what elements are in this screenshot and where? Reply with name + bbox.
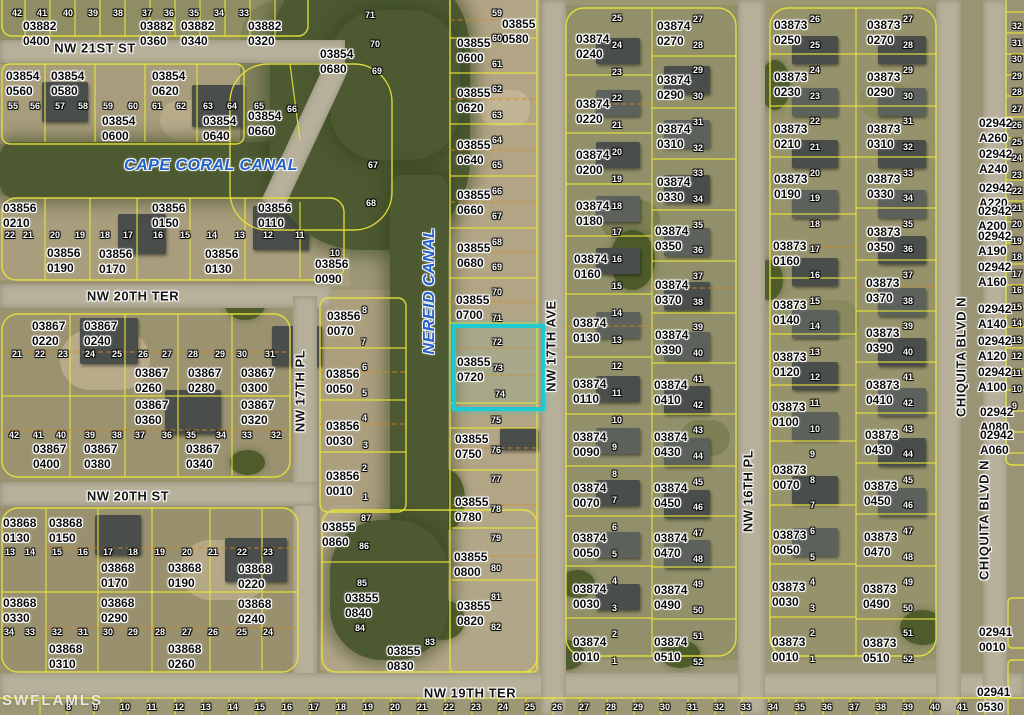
lot-number: 15 bbox=[180, 230, 190, 240]
lot-number: 68 bbox=[492, 237, 502, 247]
lot-number: 32 bbox=[1012, 21, 1022, 31]
lot-number: 60 bbox=[128, 101, 138, 111]
lot-number: 27 bbox=[903, 14, 913, 24]
lot-number: 30 bbox=[693, 91, 703, 101]
lot-number: 11 bbox=[147, 702, 157, 712]
parcel-strap-label: 03854 0580 bbox=[51, 69, 84, 98]
lot-number: 24 bbox=[612, 40, 622, 50]
parcel-strap-label: 03873 0050 bbox=[773, 528, 806, 557]
lot-number: 37 bbox=[903, 270, 913, 280]
lot-number: 10 bbox=[612, 415, 622, 425]
lot-number: 33 bbox=[242, 430, 252, 440]
lot-number: 37 bbox=[135, 430, 145, 440]
lot-number: 40 bbox=[63, 8, 73, 18]
lot-number: 19 bbox=[155, 547, 165, 557]
lot-number: 58 bbox=[78, 101, 88, 111]
lot-number: 31 bbox=[687, 702, 697, 712]
lot-number: 23 bbox=[58, 349, 68, 359]
lot-number: 10 bbox=[120, 702, 130, 712]
parcel-strap-label: 03874 0310 bbox=[657, 122, 690, 151]
parcel-strap-label: 03874 0270 bbox=[657, 19, 690, 48]
lot-number: 37 bbox=[849, 702, 859, 712]
parcel-strap-label: 03874 0180 bbox=[576, 199, 609, 228]
lot-number: 21 bbox=[208, 547, 218, 557]
lot-number: 20 bbox=[810, 168, 820, 178]
parcel-strap-label: 03873 0470 bbox=[864, 530, 897, 559]
lot-number: 20 bbox=[1012, 219, 1022, 229]
lot-number: 64 bbox=[227, 101, 237, 111]
lot-number: 40 bbox=[903, 347, 913, 357]
mls-watermark: SWFLAMLS bbox=[2, 692, 103, 709]
lot-number: 11 bbox=[612, 388, 622, 398]
lot-number: 15 bbox=[1012, 302, 1022, 312]
lot-number: 52 bbox=[903, 654, 913, 664]
lot-number: 31 bbox=[903, 116, 913, 126]
parcel-strap-label: 03874 0410 bbox=[654, 378, 687, 407]
lot-number: 48 bbox=[903, 552, 913, 562]
lot-number: 78 bbox=[491, 504, 501, 514]
lot-number: 34 bbox=[693, 194, 703, 204]
lot-number: 27 bbox=[579, 702, 589, 712]
parcel-strap-label: 03856 0190 bbox=[47, 246, 80, 275]
lot-number: 38 bbox=[112, 430, 122, 440]
lot-number: 85 bbox=[357, 578, 367, 588]
lot-number: 41 bbox=[903, 372, 913, 382]
lot-number: 12 bbox=[174, 702, 184, 712]
parcel-strap-label: 03867 0340 bbox=[186, 442, 219, 471]
lot-number: 35 bbox=[189, 8, 199, 18]
lot-number: 59 bbox=[103, 101, 113, 111]
lot-number: 32 bbox=[693, 143, 703, 153]
lot-number: 84 bbox=[355, 623, 365, 633]
parcel-strap-label: 03867 0320 bbox=[241, 398, 274, 427]
parcel-strap-label: 03873 0030 bbox=[772, 580, 805, 609]
lot-number: 44 bbox=[903, 449, 913, 459]
lot-number: 50 bbox=[903, 603, 913, 613]
lot-number: 51 bbox=[903, 628, 913, 638]
lot-number: 45 bbox=[903, 475, 913, 485]
lot-number: 25 bbox=[237, 627, 247, 637]
lot-number: 38 bbox=[876, 702, 886, 712]
parcel-strap-label: 03855 0660 bbox=[457, 188, 490, 217]
parcel-strap-label: 02942 A140 bbox=[978, 302, 1011, 331]
lot-number: 7 bbox=[810, 500, 815, 510]
lot-number: 16 bbox=[78, 547, 88, 557]
lot-number: 22 bbox=[612, 93, 622, 103]
lot-number: 10 bbox=[330, 248, 340, 258]
lot-number: 30 bbox=[237, 349, 247, 359]
parcel-strap-label: 03882 0340 bbox=[181, 19, 214, 48]
lot-number: 17 bbox=[1012, 269, 1022, 279]
lot-number: 21 bbox=[23, 230, 33, 240]
lot-number: 30 bbox=[903, 91, 913, 101]
lot-number: 20 bbox=[390, 702, 400, 712]
lot-number: 64 bbox=[492, 135, 502, 145]
lot-number: 41 bbox=[693, 374, 703, 384]
canal-name-label: NEREID CANAL bbox=[421, 228, 439, 355]
parcel-strap-label: 03868 0150 bbox=[49, 516, 82, 545]
lot-number: 33 bbox=[741, 702, 751, 712]
lot-number: 23 bbox=[1012, 170, 1022, 180]
lot-number: 22 bbox=[1012, 186, 1022, 196]
parcel-map-canvas[interactable]: 03882 040003882 036003882 034003882 0320… bbox=[0, 0, 1024, 715]
parcel-strap-label: 03854 0600 bbox=[102, 114, 135, 143]
lot-number: 39 bbox=[903, 702, 913, 712]
lot-number: 24 bbox=[1012, 153, 1022, 163]
lot-number: 62 bbox=[492, 84, 502, 94]
lot-number: 26 bbox=[208, 627, 218, 637]
street-name-label: CHIQUITA BLVD N bbox=[954, 297, 969, 417]
lot-number: 19 bbox=[612, 174, 622, 184]
lot-number: 12 bbox=[1012, 351, 1022, 361]
lot-number: 22 bbox=[810, 116, 820, 126]
lot-number: 21 bbox=[12, 349, 22, 359]
lot-number: 26 bbox=[810, 14, 820, 24]
lot-line bbox=[290, 64, 300, 140]
lot-number: 46 bbox=[903, 500, 913, 510]
parcel-strap-label: 03856 0110 bbox=[258, 201, 291, 230]
lot-number: 87 bbox=[361, 513, 371, 523]
lot-number: 24 bbox=[498, 702, 508, 712]
lot-number: 29 bbox=[215, 349, 225, 359]
parcel-strap-label: 03873 0070 bbox=[773, 463, 806, 492]
lot-number: 5 bbox=[810, 552, 815, 562]
parcel-strap-label: 03854 0620 bbox=[152, 69, 185, 98]
parcel-strap-label: 03868 0190 bbox=[168, 561, 201, 590]
lot-number: 36 bbox=[903, 244, 913, 254]
parcel-strap-label: 03874 0510 bbox=[654, 635, 687, 664]
parcel-strap-label: 03868 0260 bbox=[168, 642, 201, 671]
parcel-strap-label: 03856 0130 bbox=[205, 247, 238, 276]
lot-number: 25 bbox=[612, 13, 622, 23]
lot-number: 36 bbox=[162, 430, 172, 440]
parcel-strap-label: 03873 0370 bbox=[866, 276, 899, 305]
lot-number: 12 bbox=[612, 361, 622, 371]
lot-number: 70 bbox=[492, 287, 502, 297]
lot-number: 13 bbox=[235, 230, 245, 240]
lot-number: 7 bbox=[612, 495, 617, 505]
lot-number: 70 bbox=[370, 39, 380, 49]
lot-number: 63 bbox=[203, 101, 213, 111]
lot-number: 40 bbox=[693, 348, 703, 358]
parcel-strap-label: 03854 0680 bbox=[320, 47, 353, 76]
parcel-strap-label: 03856 0070 bbox=[327, 309, 360, 338]
parcel-strap-label: 03873 0230 bbox=[774, 70, 807, 99]
parcel-strap-label: 03874 0370 bbox=[655, 278, 688, 307]
lot-number: 56 bbox=[30, 101, 40, 111]
lot-number: 11 bbox=[295, 230, 305, 240]
lot-number: 48 bbox=[693, 554, 703, 564]
lot-number: 22 bbox=[35, 349, 45, 359]
parcel-strap-label: 03873 0450 bbox=[864, 479, 897, 508]
parcel-strap-label: 03855 0580 bbox=[502, 17, 535, 46]
lot-number: 16 bbox=[612, 254, 622, 264]
parcel-strap-label: 03873 0270 bbox=[867, 18, 900, 47]
lot-number: 31 bbox=[693, 117, 703, 127]
lot-number: 60 bbox=[492, 33, 502, 43]
lot-number: 19 bbox=[1012, 236, 1022, 246]
parcel-strap-label: 03855 0620 bbox=[457, 86, 490, 115]
lot-number: 29 bbox=[128, 627, 138, 637]
street-name-label: NW 20TH TER bbox=[87, 289, 179, 304]
parcel-strap-label: 02942 A160 bbox=[978, 260, 1011, 289]
lot-number: 30 bbox=[103, 627, 113, 637]
lot-number: 18 bbox=[810, 219, 820, 229]
lot-number: 68 bbox=[366, 198, 376, 208]
lot-number: 1 bbox=[810, 654, 815, 664]
lot-number: 12 bbox=[263, 230, 273, 240]
lot-number: 23 bbox=[612, 67, 622, 77]
lot-number: 21 bbox=[1012, 203, 1022, 213]
parcel-strap-label: 03856 0150 bbox=[152, 201, 185, 230]
lot-number: 26 bbox=[552, 702, 562, 712]
lot-number: 39 bbox=[85, 430, 95, 440]
parcel-strap-label: 03868 0170 bbox=[101, 561, 134, 590]
lot-number: 39 bbox=[88, 8, 98, 18]
lot-number: 15 bbox=[52, 547, 62, 557]
lot-number: 18 bbox=[336, 702, 346, 712]
lot-number: 24 bbox=[263, 627, 273, 637]
lot-number: 14 bbox=[228, 702, 238, 712]
lot-number: 29 bbox=[633, 702, 643, 712]
parcel-strap-label: 03855 0840 bbox=[345, 591, 378, 620]
parcel-strap-label: 03873 0430 bbox=[865, 428, 898, 457]
lot-number: 2 bbox=[810, 628, 815, 638]
lot-number: 13 bbox=[1012, 335, 1022, 345]
lot-number: 39 bbox=[903, 321, 913, 331]
lot-number: 20 bbox=[612, 147, 622, 157]
lot-number: 40 bbox=[56, 430, 66, 440]
lot-number: 42 bbox=[693, 400, 703, 410]
parcel-strap-label: 03874 0110 bbox=[573, 377, 606, 406]
lot-number: 8 bbox=[612, 469, 617, 479]
lot-number: 20 bbox=[182, 547, 192, 557]
lot-number: 62 bbox=[176, 101, 186, 111]
lot-number: 5 bbox=[362, 388, 367, 398]
lot-number: 17 bbox=[309, 702, 319, 712]
parcel-strap-label: 03882 0360 bbox=[140, 19, 173, 48]
lot-number: 32 bbox=[714, 702, 724, 712]
parcel-strap-label: 03873 0290 bbox=[867, 70, 900, 99]
parcel-strap-label: 03873 0310 bbox=[867, 122, 900, 151]
parcel-strap-label: 03855 0820 bbox=[457, 599, 490, 628]
lot-number: 13 bbox=[612, 335, 622, 345]
parcel-strap-label: 03855 0680 bbox=[457, 241, 490, 270]
lot-number: 43 bbox=[903, 424, 913, 434]
lot-number: 28 bbox=[606, 702, 616, 712]
lot-number: 28 bbox=[693, 40, 703, 50]
lot-number: 41 bbox=[37, 8, 47, 18]
lot-number: 41 bbox=[33, 430, 43, 440]
lot-number: 27 bbox=[182, 627, 192, 637]
parcel-strap-label: 03873 0330 bbox=[867, 172, 900, 201]
lot-number: 2 bbox=[362, 463, 367, 473]
parcel-strap-label: 03874 0030 bbox=[573, 582, 606, 611]
lot-number: 33 bbox=[25, 627, 35, 637]
lot-number: 47 bbox=[693, 528, 703, 538]
lot-number: 31 bbox=[1012, 38, 1022, 48]
lot-number: 32 bbox=[271, 430, 281, 440]
lot-number: 27 bbox=[1012, 104, 1022, 114]
lot-number: 41 bbox=[957, 702, 967, 712]
lot-number: 83 bbox=[425, 637, 435, 647]
lot-number: 17 bbox=[810, 244, 820, 254]
lot-number: 34 bbox=[216, 430, 226, 440]
lot-number: 33 bbox=[693, 168, 703, 178]
lot-number: 34 bbox=[4, 627, 14, 637]
lot-number: 49 bbox=[693, 579, 703, 589]
parcel-strap-label: 02941 0530 bbox=[977, 685, 1010, 714]
parcel-strap-label: 03855 0750 bbox=[455, 432, 488, 461]
lot-number: 50 bbox=[693, 605, 703, 615]
lot-number: 21 bbox=[612, 120, 622, 130]
lot-number: 27 bbox=[162, 349, 172, 359]
parcel-strap-label: 02942 A060 bbox=[980, 428, 1013, 457]
lot-number: 18 bbox=[612, 201, 622, 211]
lot-number: 16 bbox=[810, 270, 820, 280]
parcel-strap-label: 03856 0010 bbox=[326, 469, 359, 498]
lot-number: 14 bbox=[612, 308, 622, 318]
lot-number: 15 bbox=[255, 702, 265, 712]
lot-number: 10 bbox=[1012, 384, 1022, 394]
lot-number: 4 bbox=[362, 413, 367, 423]
parcel-strap-label: 03855 0830 bbox=[387, 644, 420, 673]
parcel-strap-label: 03867 0260 bbox=[135, 366, 168, 395]
lot-number: 36 bbox=[164, 8, 174, 18]
lot-number: 2 bbox=[612, 629, 617, 639]
parcel-strap-label: 03868 0290 bbox=[101, 596, 134, 625]
lot-number: 16 bbox=[282, 702, 292, 712]
lot-number: 15 bbox=[810, 296, 820, 306]
lot-number: 49 bbox=[903, 577, 913, 587]
parcel-strap-label: 03873 0190 bbox=[774, 172, 807, 201]
lot-number: 8 bbox=[362, 305, 367, 315]
lot-number: 9 bbox=[612, 442, 617, 452]
parcel-strap-label: 03868 0310 bbox=[49, 642, 82, 671]
lot-number: 28 bbox=[1012, 87, 1022, 97]
lot-number: 24 bbox=[810, 65, 820, 75]
lot-number: 45 bbox=[693, 477, 703, 487]
parcel-strap-label: 03874 0090 bbox=[573, 430, 606, 459]
lot-number: 28 bbox=[903, 40, 913, 50]
lot-number: 3 bbox=[810, 603, 815, 613]
parcel-strap-label: 03867 0360 bbox=[135, 398, 168, 427]
lot-number: 40 bbox=[930, 702, 940, 712]
lot-number: 39 bbox=[693, 322, 703, 332]
lot-number: 43 bbox=[693, 425, 703, 435]
lot-number: 13 bbox=[201, 702, 211, 712]
lot-number: 23 bbox=[810, 91, 820, 101]
lot-number: 21 bbox=[417, 702, 427, 712]
parcel-strap-label: 03874 0490 bbox=[654, 583, 687, 612]
lot-number: 38 bbox=[113, 8, 123, 18]
lot-number: 11 bbox=[810, 398, 820, 408]
lot-number: 86 bbox=[359, 541, 369, 551]
lot-number: 61 bbox=[492, 59, 502, 69]
lot-number: 73 bbox=[493, 363, 503, 373]
parcel-strap-label: 03882 0320 bbox=[248, 19, 281, 48]
parcel-strap-label: 03874 0350 bbox=[655, 224, 688, 253]
lot-number: 71 bbox=[492, 313, 502, 323]
lot-number: 9 bbox=[1012, 401, 1017, 411]
lot-number: 65 bbox=[492, 160, 502, 170]
lot-number: 19 bbox=[75, 230, 85, 240]
parcel-strap-label: 03873 0120 bbox=[773, 350, 806, 379]
lot-number: 66 bbox=[492, 186, 502, 196]
lot-number: 26 bbox=[138, 349, 148, 359]
lot-number: 35 bbox=[693, 220, 703, 230]
lot-number: 82 bbox=[491, 622, 501, 632]
parcel-strap-label: 03856 0170 bbox=[99, 247, 132, 276]
lot-number: 66 bbox=[287, 104, 297, 114]
lot-number: 14 bbox=[207, 230, 217, 240]
lot-number: 42 bbox=[9, 430, 19, 440]
lot-number: 6 bbox=[362, 362, 367, 372]
lot-number: 57 bbox=[55, 101, 65, 111]
lot-number: 32 bbox=[52, 627, 62, 637]
parcel-strap-label: 03854 0560 bbox=[6, 69, 39, 98]
lot-number: 18 bbox=[100, 230, 110, 240]
lot-number: 42 bbox=[12, 8, 22, 18]
lot-number: 16 bbox=[153, 230, 163, 240]
lot-number: 7 bbox=[361, 337, 366, 347]
parcel-strap-label: 03873 0510 bbox=[863, 636, 896, 665]
lot-number: 36 bbox=[822, 702, 832, 712]
lot-number: 69 bbox=[372, 66, 382, 76]
lot-number: 28 bbox=[188, 349, 198, 359]
street-name-label: NW 19TH TER bbox=[424, 686, 516, 701]
parcel-strap-label: 03855 0700 bbox=[456, 293, 489, 322]
lot-number: 29 bbox=[693, 65, 703, 75]
lot-number: 67 bbox=[368, 160, 378, 170]
parcel-strap-label: 03867 0280 bbox=[188, 366, 221, 395]
lot-number: 35 bbox=[186, 430, 196, 440]
parcel-strap-label: 03855 0640 bbox=[457, 138, 490, 167]
parcel-strap-label: 03873 0390 bbox=[866, 326, 899, 355]
lot-number: 13 bbox=[810, 347, 820, 357]
lot-number: 34 bbox=[214, 8, 224, 18]
parcel-strap-label: 03855 0600 bbox=[457, 36, 490, 65]
parcel-strap-label: 03854 0660 bbox=[248, 109, 281, 138]
lot-number: 8 bbox=[810, 475, 815, 485]
street-name-label: NW 21ST ST bbox=[54, 41, 136, 56]
lot-number: 18 bbox=[1012, 252, 1022, 262]
street-name-label: NW 20TH ST bbox=[87, 489, 169, 504]
parcel-strap-label: 02942 A260 bbox=[979, 116, 1012, 145]
lot-number: 34 bbox=[768, 702, 778, 712]
parcel-strap-label: 03873 0010 bbox=[772, 635, 805, 664]
lot-number: 35 bbox=[903, 219, 913, 229]
parcel-strap-label: 03874 0050 bbox=[573, 531, 606, 560]
lot-number: 13 bbox=[5, 547, 15, 557]
lot-number: 17 bbox=[612, 227, 622, 237]
lot-number: 34 bbox=[903, 193, 913, 203]
lot-number: 38 bbox=[903, 296, 913, 306]
street-name-label: CHIQUITA BLVD N bbox=[977, 460, 992, 580]
lot-number: 25 bbox=[810, 40, 820, 50]
lot-number: 5 bbox=[612, 549, 617, 559]
lot-number: 29 bbox=[903, 65, 913, 75]
parcel-strap-label: 03867 0300 bbox=[241, 366, 274, 395]
parcel-strap-label: 03856 0210 bbox=[3, 201, 36, 230]
street-name-label: NW 17TH PL bbox=[293, 350, 308, 432]
parcel-strap-label: 03873 0250 bbox=[774, 18, 807, 47]
lot-number: 31 bbox=[78, 627, 88, 637]
lot-number: 4 bbox=[612, 576, 617, 586]
lot-number: 23 bbox=[263, 547, 273, 557]
parcel-strap-label: 03874 0470 bbox=[654, 531, 687, 560]
parcel-strap-label: 03874 0390 bbox=[655, 328, 688, 357]
